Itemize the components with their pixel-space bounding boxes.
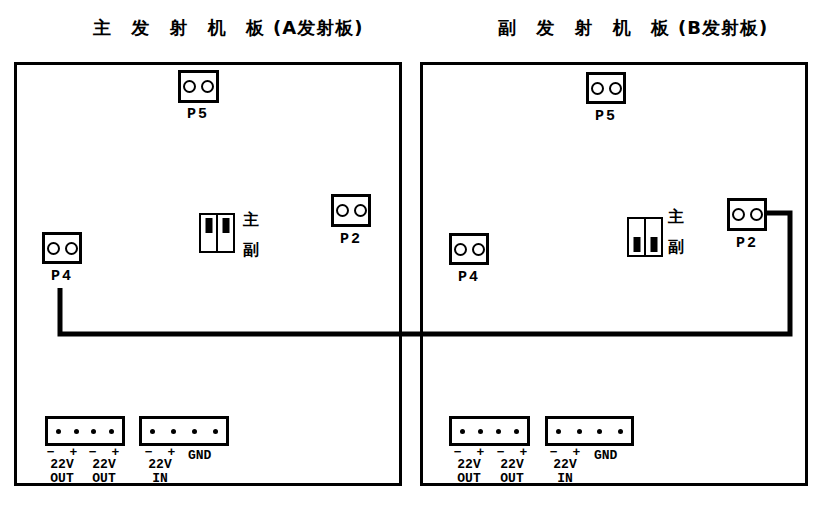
- board-b-p4-connector: [449, 233, 489, 265]
- board-b-jumper-sub-label: 副: [668, 237, 684, 258]
- board-b-p4-label: P4: [449, 269, 489, 286]
- pin-dot: [478, 429, 483, 434]
- board-a-title-main: 主 发 射 机 板: [93, 17, 271, 38]
- pin-hole: [183, 80, 196, 93]
- pin-hole: [354, 204, 367, 217]
- board-b-power-label-out1: − + 22V OUT: [447, 447, 491, 485]
- wiring-diagram: 主 发 射 机 板(A发射板) 副 发 射 机 板(B发射板) P5 P2 P4…: [0, 0, 820, 509]
- board-a-power-out-connector: [45, 416, 125, 446]
- board-a-outline: P5 P2 P4 主 副 − + 22V OUT: [14, 62, 402, 486]
- board-b-power-label-in: − + 22V IN: [543, 447, 587, 485]
- pin-dot: [56, 429, 61, 434]
- board-a-power-label-out1: − + 22V OUT: [40, 447, 84, 485]
- pin-dot: [171, 429, 176, 434]
- pin-hole: [47, 242, 60, 255]
- board-a-power-label-in: − + 22V IN: [138, 447, 182, 485]
- voltage-label: 22V: [447, 459, 491, 471]
- direction-label: OUT: [40, 473, 84, 485]
- pin-hole: [472, 243, 485, 256]
- jumper-bar: [650, 237, 657, 252]
- board-b-title-suffix: (B发射板): [678, 17, 768, 38]
- board-a-mode-jumper: [199, 213, 235, 253]
- board-a-title: 主 发 射 机 板(A发射板): [93, 16, 363, 40]
- jumper-cell: [201, 215, 218, 251]
- direction-label: OUT: [82, 473, 126, 485]
- board-a-p5-label: P5: [178, 106, 218, 123]
- voltage-label: 22V: [40, 459, 84, 471]
- jumper-bar: [633, 237, 640, 252]
- board-a-p2-label: P2: [331, 231, 371, 248]
- board-b-mode-jumper: [627, 217, 663, 257]
- board-b-jumper-main-label: 主: [668, 207, 684, 228]
- board-b-gnd-label: GND: [594, 448, 617, 463]
- pin-dot: [514, 429, 519, 434]
- direction-label: OUT: [490, 473, 534, 485]
- jumper-cell: [629, 219, 646, 255]
- board-a-p2-connector: [331, 194, 371, 227]
- pin-dot: [618, 429, 623, 434]
- board-b-power-in-connector: [545, 416, 634, 446]
- jumper-bar: [222, 218, 229, 233]
- pin-dot: [91, 429, 96, 434]
- board-a-p4-label: P4: [42, 268, 82, 285]
- pin-hole: [65, 242, 78, 255]
- pin-dot: [577, 429, 582, 434]
- board-a-power-in-connector: [139, 416, 229, 446]
- board-a-title-suffix: (A发射板): [273, 17, 363, 38]
- pin-dot: [74, 429, 79, 434]
- pin-hole: [336, 204, 349, 217]
- board-a-power-label-out2: − + 22V OUT: [82, 447, 126, 485]
- board-b-power-out-connector: [449, 416, 530, 446]
- pin-dot: [150, 429, 155, 434]
- board-b-p5-label: P5: [586, 108, 626, 125]
- pin-dot: [597, 429, 602, 434]
- board-b-title-main: 副 发 射 机 板: [498, 17, 676, 38]
- board-b-p2-label: P2: [727, 235, 767, 252]
- direction-label: IN: [138, 473, 182, 485]
- pin-hole: [201, 80, 214, 93]
- jumper-cell: [646, 219, 661, 255]
- jumper-bar: [205, 218, 212, 233]
- pin-hole: [750, 208, 763, 221]
- pin-dot: [556, 429, 561, 434]
- direction-label: IN: [543, 473, 587, 485]
- pin-hole: [454, 243, 467, 256]
- voltage-label: 22V: [82, 459, 126, 471]
- pin-hole: [591, 82, 604, 95]
- board-b-power-label-out2: − + 22V OUT: [490, 447, 534, 485]
- pin-dot: [460, 429, 465, 434]
- board-b-title: 副 发 射 机 板(B发射板): [498, 16, 768, 40]
- voltage-label: 22V: [138, 459, 182, 471]
- jumper-cell: [218, 215, 233, 251]
- board-b-p5-connector: [586, 72, 626, 104]
- pin-dot: [109, 429, 114, 434]
- voltage-label: 22V: [543, 459, 587, 471]
- board-a-p4-connector: [42, 232, 82, 264]
- pin-hole: [732, 208, 745, 221]
- pin-dot: [496, 429, 501, 434]
- board-a-gnd-label: GND: [188, 448, 211, 463]
- board-a-p5-connector: [178, 70, 219, 103]
- board-a-jumper-sub-label: 副: [243, 240, 259, 261]
- board-a-jumper-main-label: 主: [243, 210, 259, 231]
- direction-label: OUT: [447, 473, 491, 485]
- pin-dot: [192, 429, 197, 434]
- board-b-p2-connector: [727, 198, 767, 231]
- pin-hole: [609, 82, 622, 95]
- voltage-label: 22V: [490, 459, 534, 471]
- pin-dot: [213, 429, 218, 434]
- board-b-outline: P5 P2 P4 主 副 − + 22V OUT: [420, 62, 808, 486]
